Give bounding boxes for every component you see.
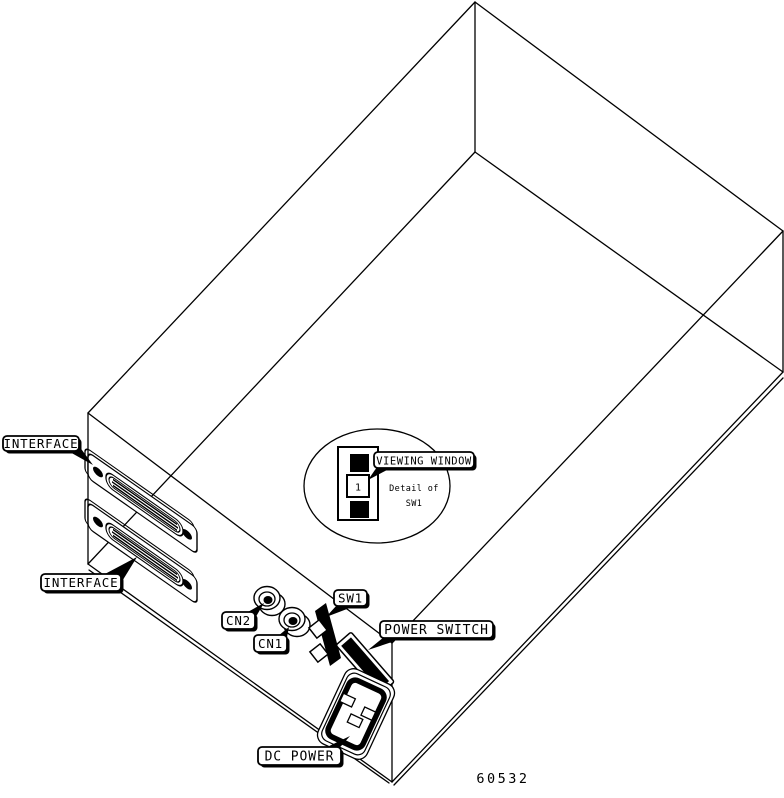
- sw1-switch-bottom-block: [350, 501, 369, 518]
- callout-label: VIEWING WINDOW: [376, 456, 472, 468]
- callout-label: INTERFACE: [4, 436, 79, 451]
- jack-hole: [264, 596, 273, 604]
- inlet-recess-ring: [326, 678, 387, 750]
- figure-number: 60532: [476, 771, 529, 787]
- enclosure-outline: [88, 2, 783, 785]
- edge-top-right: [475, 2, 783, 231]
- jack-hole: [289, 617, 298, 625]
- callout-cn1: CN1: [254, 627, 290, 655]
- callout-sw1: SW1: [326, 590, 370, 617]
- callout-label: SW1: [338, 591, 363, 606]
- callout-interface-top: INTERFACE: [3, 436, 93, 465]
- edge-top-left: [88, 2, 475, 413]
- sw1-switch-top-block: [350, 454, 369, 472]
- callout-label: CN2: [226, 613, 251, 628]
- callout-cn2: CN2: [222, 603, 264, 632]
- edge-bottom-right-inner: [394, 378, 783, 785]
- callout-power-switch: POWER SWITCH: [368, 621, 496, 650]
- sw1-position-digit: 1: [355, 483, 361, 494]
- rear-panel-diagram-svg: 1 Detail of SW1 I: [0, 0, 784, 793]
- edge-side-panel-top: [392, 231, 783, 643]
- detail-caption-line1: Detail of: [389, 484, 439, 494]
- rear-panel-diagram: 1 Detail of SW1 I: [0, 0, 784, 793]
- detail-caption-line2: SW1: [406, 499, 423, 509]
- edge-bottom-right-outer: [392, 372, 783, 782]
- callout-label: INTERFACE: [44, 575, 119, 590]
- edge-bottom-back-right: [475, 152, 783, 372]
- callout-label: DC POWER: [265, 750, 335, 765]
- callout-label: CN1: [258, 636, 283, 651]
- sw1-detail-inset: 1 Detail of SW1: [304, 429, 450, 543]
- callout-label: POWER SWITCH: [384, 623, 489, 638]
